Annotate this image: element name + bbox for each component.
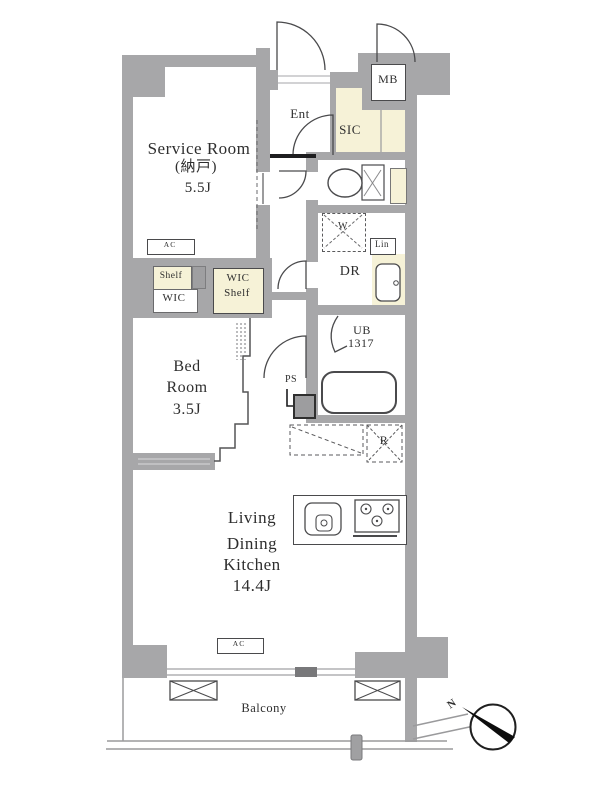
ac-label-serviceroom: AC [164, 241, 176, 249]
wic-shelf-label-2: Shelf [224, 287, 250, 299]
kitchen-cabinet-dashed [290, 425, 363, 455]
bath-door-arc [331, 316, 347, 352]
pipe-space-connector [287, 389, 293, 406]
dr-label: DR [340, 264, 360, 279]
balcony-diagonal-line1 [413, 714, 468, 726]
meter-box-label: MB [378, 73, 398, 86]
bathtub-icon [322, 372, 396, 413]
wic-label: WIC [163, 292, 186, 304]
floor-plan: Service Room (納戸) 5.5J Ent MB SIC W Lin … [0, 0, 600, 800]
ldk-word2: Dining [227, 535, 277, 554]
refrigerator-label: R [380, 434, 389, 447]
linen-label: Lin [375, 240, 389, 250]
bedroom-partition-hatch [237, 323, 245, 360]
ldk-door-arc [264, 336, 306, 378]
ldk-window-mullion [295, 667, 317, 677]
shelf-label: Shelf [160, 271, 183, 281]
dr-door-arc [278, 261, 306, 289]
washer-label: W [338, 221, 348, 232]
bed-room-word1: Bed [173, 358, 200, 376]
vanity-basin-icon [376, 264, 400, 301]
wic-shelf-label-1: WIC [227, 272, 250, 284]
bed-room-word2: Room [166, 379, 207, 397]
balcony-hatch-left [170, 681, 217, 700]
balcony-diagonal-line2 [413, 726, 474, 739]
kitchen-sink-icon [305, 503, 341, 535]
balcony-hatch-right [355, 681, 400, 700]
pipe-space-label: PS [285, 374, 297, 385]
balcony-post [351, 735, 362, 760]
toilet-icon [328, 165, 384, 200]
meter-box-door-arc [377, 24, 415, 62]
bed-room-size: 3.5J [173, 401, 201, 419]
entry-step-line [270, 154, 316, 158]
sic-label: SIC [339, 123, 361, 137]
compass-icon [462, 705, 516, 750]
toilet-door-arc [279, 171, 306, 198]
unit-bath-size: 1317 [348, 337, 374, 350]
ldk-word1: Living [228, 509, 276, 528]
entrance-label: Ent [290, 107, 310, 121]
ac-label-ldk: AC [233, 640, 245, 648]
service-room-size: 5.5J [185, 180, 212, 197]
ldk-word3: Kitchen [223, 556, 280, 575]
entry-door-arc [277, 22, 325, 70]
balcony-label: Balcony [241, 702, 286, 716]
stove-icon [353, 500, 399, 536]
ldk-size: 14.4J [233, 577, 272, 596]
service-room-alt-name: (納戸) [175, 159, 217, 176]
service-room-name: Service Room [148, 140, 251, 159]
